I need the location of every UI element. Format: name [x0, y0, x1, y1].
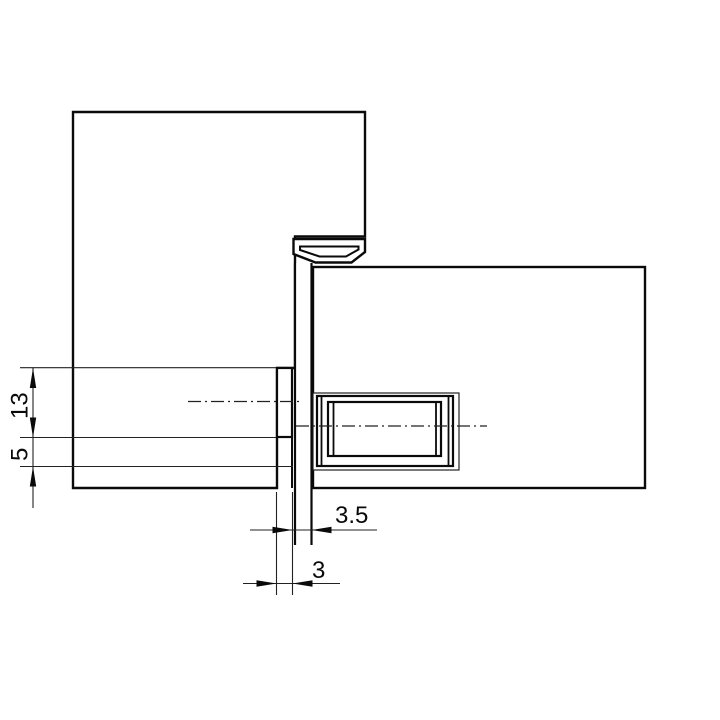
dimension-3: 3: [243, 557, 340, 587]
arrow-left-icon: [312, 527, 332, 533]
dim-5-label: 5: [7, 448, 34, 461]
hinge-plate: [295, 263, 312, 545]
dim-3-5-label: 3.5: [335, 502, 368, 529]
technical-drawing-canvas: 13 5 3.5 3: [0, 0, 720, 720]
arrow-down-icon: [30, 418, 36, 438]
arrow-right-icon: [257, 580, 277, 586]
arrow-left-icon: [293, 580, 313, 586]
hinge-section-drawing: 13 5 3.5 3: [0, 0, 720, 720]
hinge-knuckle: [294, 239, 366, 263]
hinge-body-door-side: [277, 368, 292, 488]
arrow-up-icon: [30, 467, 36, 487]
hinge-body-frame-side: [317, 396, 453, 466]
arrow-up-icon: [30, 368, 36, 388]
arrow-right-icon: [273, 527, 293, 533]
dim-13-label: 13: [7, 392, 34, 419]
dim-3-label: 3: [312, 557, 325, 584]
